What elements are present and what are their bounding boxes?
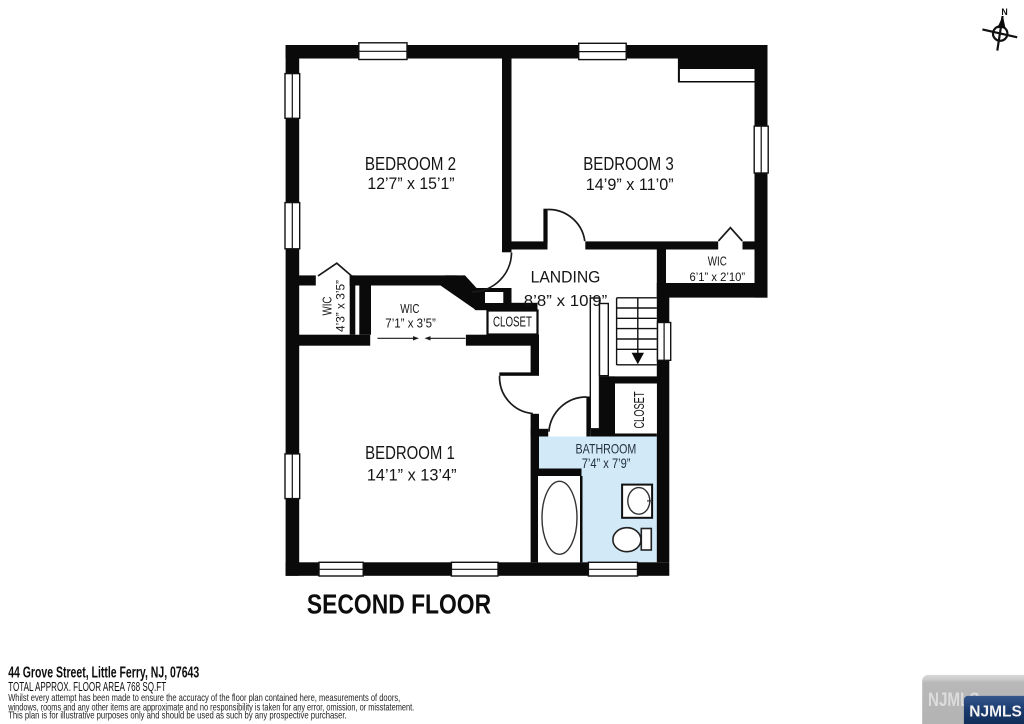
svg-text:NJMLS: NJMLS — [969, 704, 1022, 721]
svg-text:BATHROOM: BATHROOM — [576, 440, 637, 456]
svg-text:14’1” x 13’4”: 14’1” x 13’4” — [367, 467, 457, 485]
svg-text:BEDROOM 3: BEDROOM 3 — [583, 154, 674, 174]
svg-text:TOTAL APPROX. FLOOR AREA 768 S: TOTAL APPROX. FLOOR AREA 768 SQ.FT — [8, 679, 166, 694]
svg-text:6’1” x 2’10”: 6’1” x 2’10” — [689, 270, 745, 284]
svg-text:LANDING: LANDING — [531, 267, 601, 286]
svg-text:7’4” x 7’9”: 7’4” x 7’9” — [582, 456, 631, 471]
svg-text:This plan is for illustrative: This plan is for illustrative purposes o… — [8, 711, 347, 722]
svg-text:7’1” x 3’5”: 7’1” x 3’5” — [385, 315, 436, 330]
svg-text:WIC: WIC — [321, 297, 335, 316]
svg-text:14’9” x 11’0”: 14’9” x 11’0” — [586, 176, 674, 194]
svg-text:CLOSET: CLOSET — [493, 315, 532, 331]
svg-text:8’8” x 10’9”: 8’8” x 10’9” — [524, 293, 607, 310]
svg-text:SECOND FLOOR: SECOND FLOOR — [307, 589, 491, 620]
svg-text:BEDROOM 1: BEDROOM 1 — [365, 443, 455, 463]
svg-text:BEDROOM 2: BEDROOM 2 — [365, 154, 456, 174]
svg-text:CLOSET: CLOSET — [632, 391, 648, 428]
svg-text:12’7” x 15’1”: 12’7” x 15’1” — [367, 175, 454, 193]
svg-text:WIC: WIC — [400, 301, 419, 316]
svg-text:4’3” x 3’5”: 4’3” x 3’5” — [334, 280, 348, 332]
svg-text:N: N — [1001, 7, 1007, 17]
svg-text:WIC: WIC — [708, 255, 727, 269]
